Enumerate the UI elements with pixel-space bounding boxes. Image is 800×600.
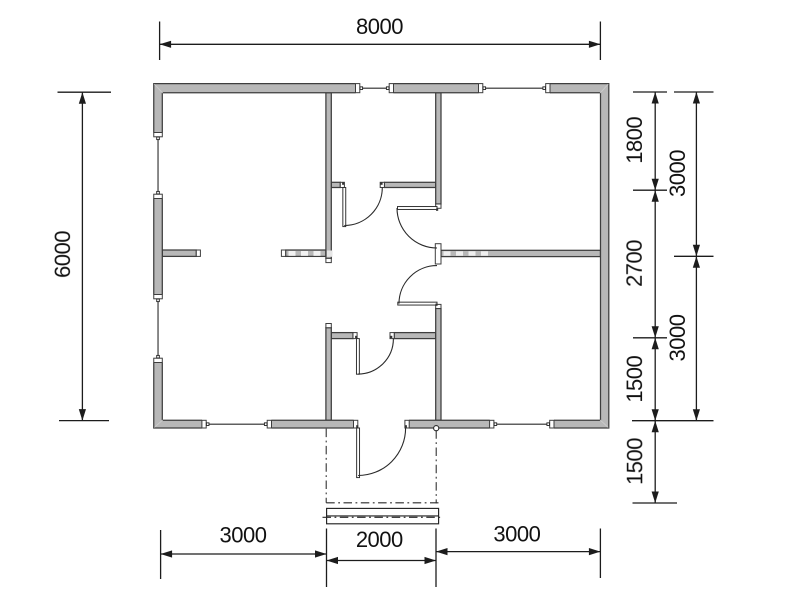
svg-text:3000: 3000: [493, 522, 540, 547]
svg-text:1500: 1500: [622, 355, 647, 402]
svg-text:6000: 6000: [50, 231, 75, 278]
svg-text:1500: 1500: [622, 438, 647, 485]
svg-text:1800: 1800: [622, 117, 647, 164]
svg-text:3000: 3000: [220, 522, 267, 547]
svg-text:8000: 8000: [356, 14, 403, 39]
svg-text:2700: 2700: [622, 240, 647, 287]
svg-text:2000: 2000: [356, 527, 403, 552]
svg-text:3000: 3000: [665, 314, 690, 361]
svg-text:3000: 3000: [665, 150, 690, 197]
